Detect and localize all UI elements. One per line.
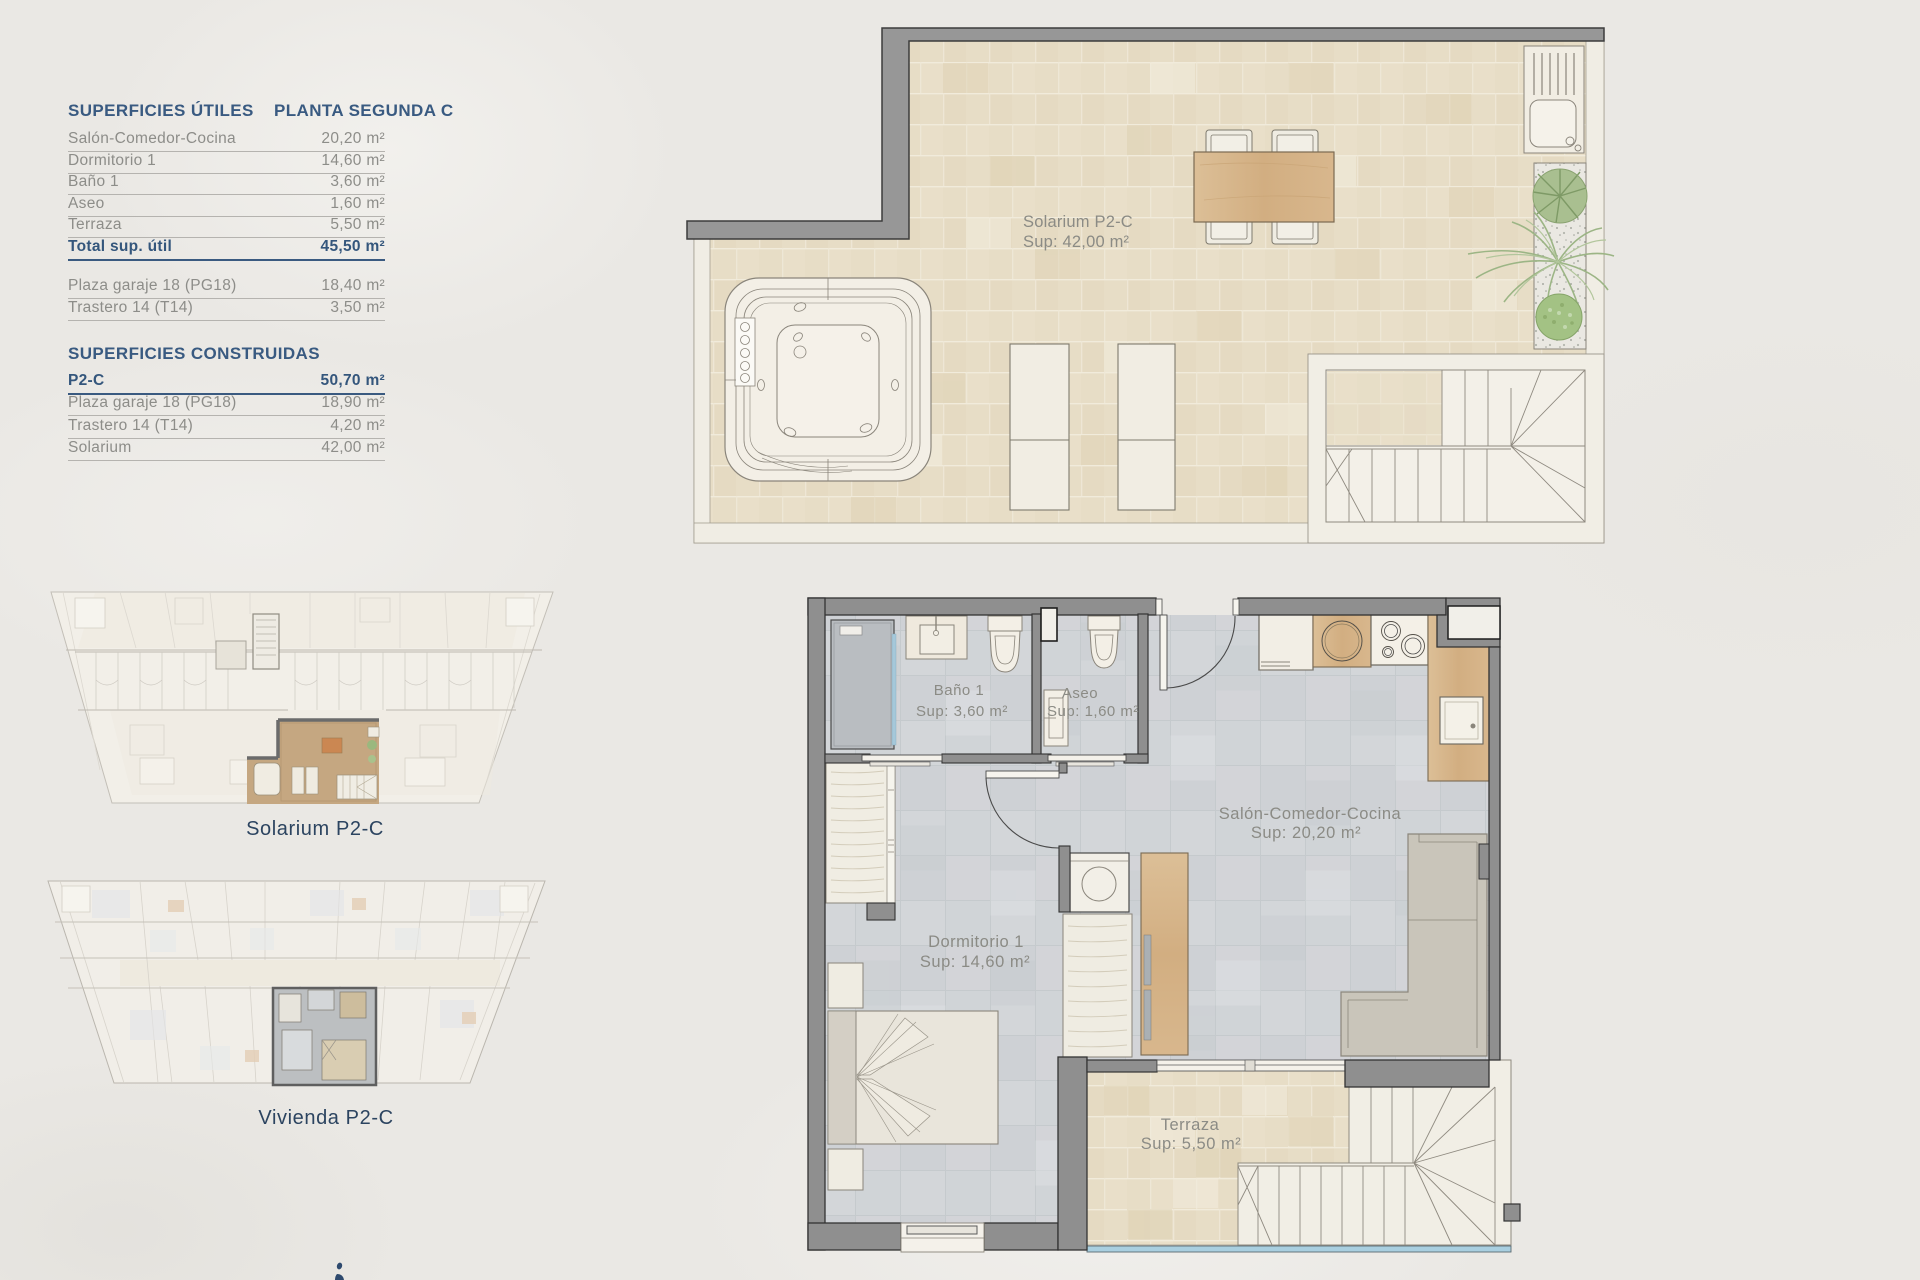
svg-text:Salón-Comedor-Cocina: Salón-Comedor-Cocina: [1219, 805, 1402, 823]
svg-text:Sup: 3,60 m²: Sup: 3,60 m²: [916, 703, 1008, 720]
svg-text:Solarium P2-C: Solarium P2-C: [246, 818, 384, 840]
svg-text:Sup: 14,60 m²: Sup: 14,60 m²: [920, 953, 1030, 971]
svg-text:Solarium P2-C: Solarium P2-C: [1023, 213, 1133, 231]
svg-text:Sup: 5,50 m²: Sup: 5,50 m²: [1141, 1135, 1241, 1153]
svg-text:Aseo: Aseo: [1062, 685, 1098, 702]
svg-text:Dormitorio 1: Dormitorio 1: [928, 933, 1024, 951]
svg-text:Sup: 1,60 m²: Sup: 1,60 m²: [1047, 703, 1139, 720]
svg-text:Terraza: Terraza: [1161, 1116, 1220, 1134]
svg-text:Vivienda P2-C: Vivienda P2-C: [258, 1107, 393, 1129]
svg-text:Sup: 42,00 m²: Sup: 42,00 m²: [1023, 233, 1130, 251]
svg-text:Baño 1: Baño 1: [934, 682, 985, 699]
svg-text:Sup: 20,20 m²: Sup: 20,20 m²: [1251, 824, 1361, 842]
